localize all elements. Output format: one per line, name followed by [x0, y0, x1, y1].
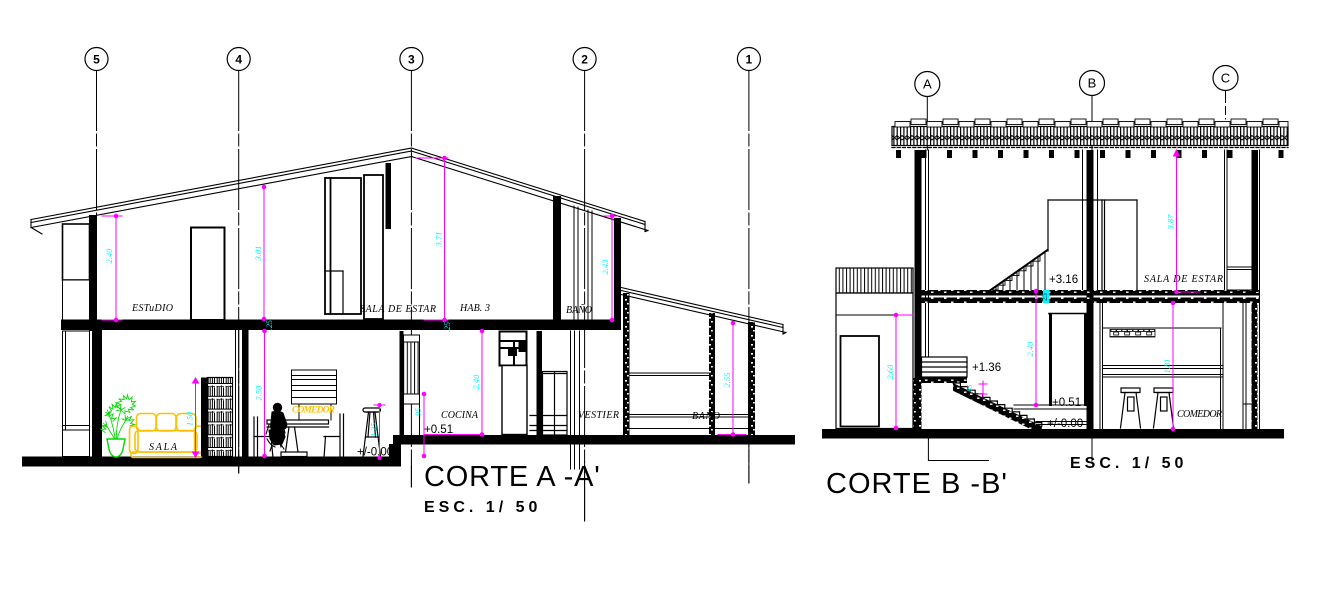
- svg-text:SALA DE ESTAR: SALA DE ESTAR: [1144, 274, 1223, 285]
- svg-text:BAÑO: BAÑO: [692, 410, 720, 422]
- svg-text:COMEDOR: COMEDOR: [292, 406, 335, 416]
- svg-text:SALA: SALA: [149, 442, 178, 453]
- svg-text:4: 4: [235, 53, 242, 67]
- svg-text:+0.51: +0.51: [1052, 397, 1081, 409]
- svg-text:+/-0.00: +/-0.00: [357, 447, 393, 459]
- svg-text:.25: .25: [265, 320, 274, 330]
- svg-text:+3.16: +3.16: [1049, 274, 1078, 286]
- svg-text:1.50: 1.50: [186, 412, 195, 426]
- svg-text:1.81: 1.81: [1162, 359, 1172, 374]
- svg-text:1.25: 1.25: [370, 423, 379, 437]
- svg-text:ESC. 1/ 50: ESC. 1/ 50: [1070, 455, 1187, 472]
- svg-text:COCINA: COCINA: [441, 410, 479, 421]
- svg-text:5: 5: [93, 53, 100, 67]
- svg-text:1: 1: [746, 53, 753, 67]
- svg-text:25: 25: [1040, 293, 1049, 301]
- svg-text:.25: .25: [443, 322, 452, 332]
- svg-text:ESTuDIO: ESTuDIO: [131, 303, 173, 314]
- svg-text:ESC. 1/ 50: ESC. 1/ 50: [424, 499, 541, 516]
- svg-text:COMEDOR: COMEDOR: [1177, 409, 1222, 420]
- svg-text:2.43: 2.43: [600, 260, 610, 275]
- svg-text:2.40: 2.40: [471, 374, 481, 390]
- svg-text:2.55: 2.55: [722, 373, 732, 388]
- svg-text:3: 3: [408, 53, 415, 67]
- svg-text:3.71: 3.71: [434, 232, 444, 248]
- svg-text:2.40: 2.40: [104, 248, 114, 264]
- svg-text:B: B: [1088, 76, 1097, 91]
- svg-text:VESTIER: VESTIER: [578, 410, 619, 421]
- svg-text:3.87: 3.87: [1166, 214, 1176, 231]
- svg-text:.85: .85: [966, 384, 974, 393]
- svg-text:CORTE A -A': CORTE A -A': [424, 461, 601, 493]
- svg-text:.95: .95: [414, 408, 423, 418]
- svg-text:2.50: 2.50: [254, 385, 264, 401]
- svg-text:HAB. 3: HAB. 3: [459, 303, 490, 314]
- svg-text:A: A: [923, 77, 932, 92]
- svg-text:BAÑO: BAÑO: [566, 304, 592, 316]
- svg-text:SALA DE ESTAR: SALA DE ESTAR: [360, 304, 436, 315]
- svg-text:2: 2: [581, 53, 588, 67]
- svg-text:2.60: 2.60: [885, 364, 895, 380]
- svg-text:+1.36: +1.36: [972, 362, 1001, 374]
- svg-text:C: C: [1221, 71, 1230, 86]
- svg-text:2.40: 2.40: [1025, 341, 1035, 357]
- svg-text:+/-0.00: +/-0.00: [1047, 418, 1083, 430]
- svg-text:CORTE B -B': CORTE B -B': [826, 468, 1008, 500]
- svg-text:3.01: 3.01: [253, 246, 263, 262]
